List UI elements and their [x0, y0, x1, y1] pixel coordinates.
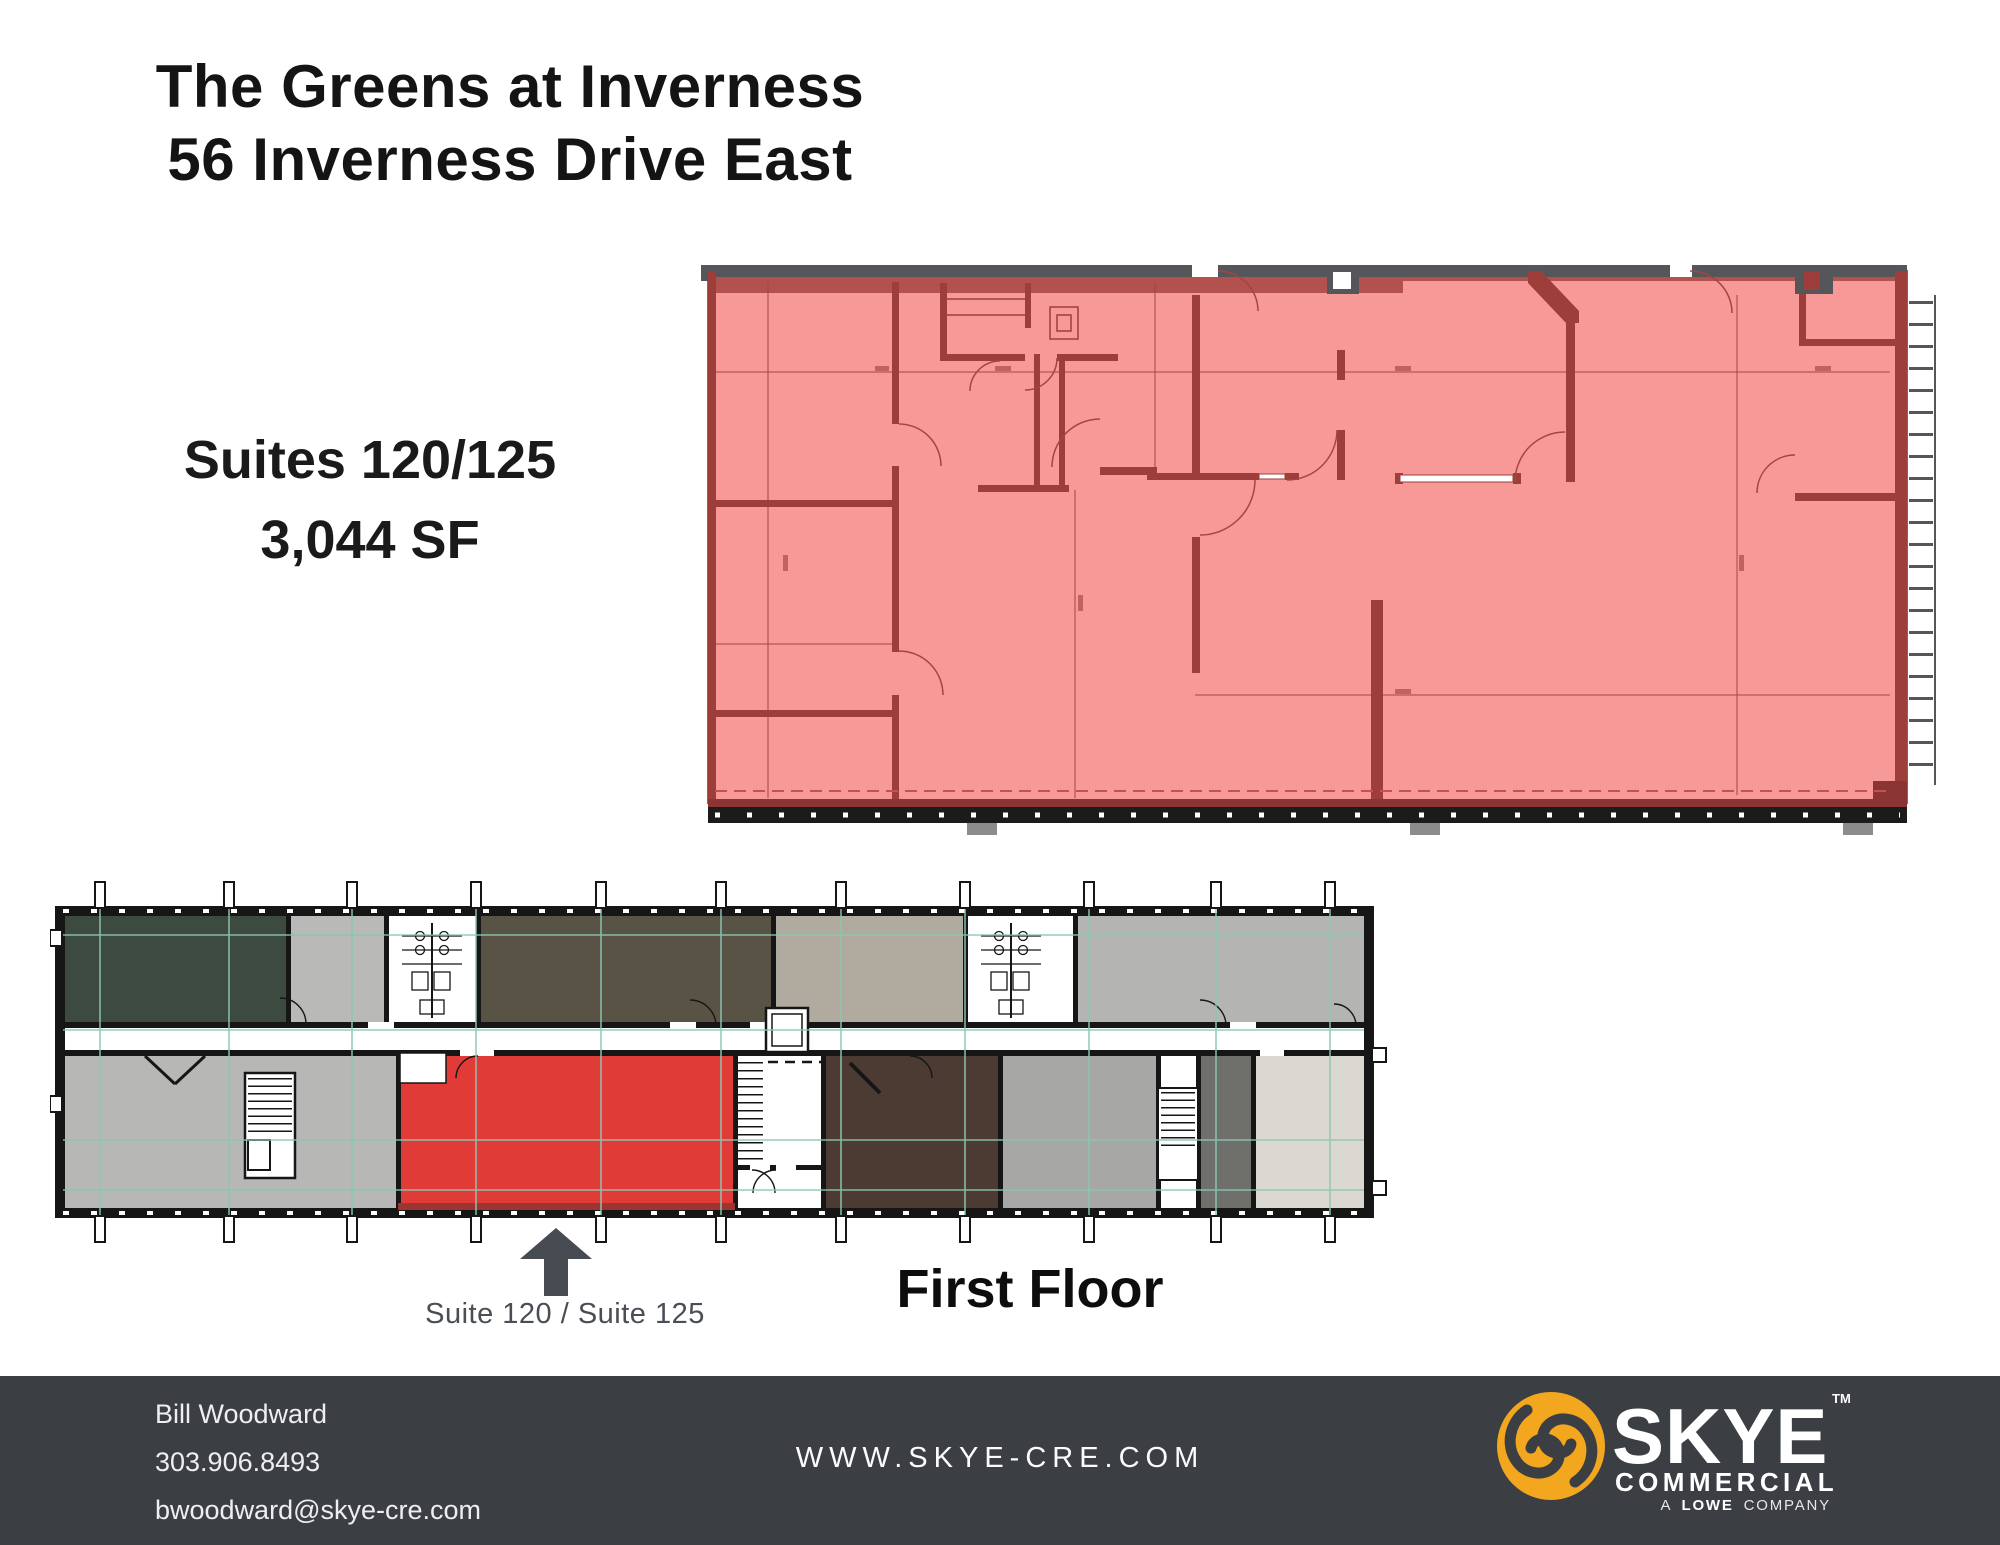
contact-email[interactable]: bwoodward@skye-cre.com: [155, 1486, 481, 1534]
tagline-suffix: COMPANY: [1744, 1497, 1831, 1514]
logo-trademark: TM: [1832, 1391, 1851, 1406]
tagline-lowe: LOWE: [1681, 1497, 1733, 1514]
flyer-page: The Greens at Inverness 56 Inverness Dri…: [0, 0, 2000, 1545]
suite-info: Suites 120/125 3,044 SF: [130, 420, 610, 580]
logo-division-text: COMMERCIAL: [1615, 1467, 1838, 1498]
suite-area: 3,044 SF: [130, 500, 610, 580]
title-line-1: The Greens at Inverness: [95, 50, 925, 123]
skye-swirl-icon: [1493, 1388, 1609, 1504]
footer: Bill Woodward 303.906.8493 bwoodward@sky…: [0, 1376, 2000, 1545]
title-line-2: 56 Inverness Drive East: [95, 123, 925, 196]
up-arrow-icon: [520, 1228, 592, 1296]
floor-label: First Floor: [865, 1258, 1195, 1320]
tagline-prefix: A: [1661, 1497, 1672, 1514]
contact-name: Bill Woodward: [155, 1390, 481, 1438]
suite-numbers: Suites 120/125: [130, 420, 610, 500]
page-title: The Greens at Inverness 56 Inverness Dri…: [95, 50, 925, 196]
logo-brand-text: SKYE: [1612, 1396, 1828, 1476]
suite-detail-floor-plan: [695, 255, 1940, 835]
suite-pointer-label: Suite 120 / Suite 125: [380, 1298, 750, 1331]
first-floor-plan: [50, 878, 1395, 1250]
logo-tagline: A LOWE COMPANY: [1615, 1497, 1831, 1514]
